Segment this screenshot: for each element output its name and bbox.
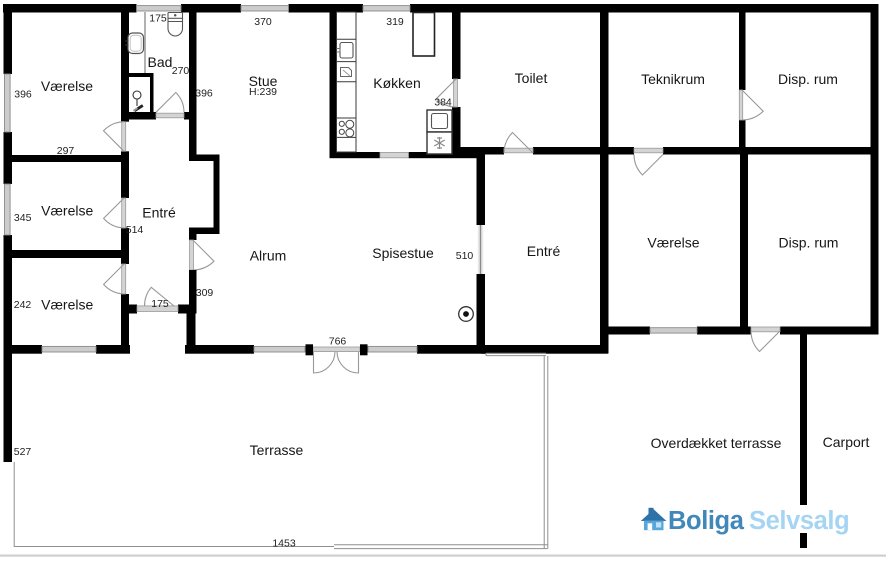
- svg-text:510: 510: [456, 250, 474, 262]
- svg-text:Terrasse: Terrasse: [250, 442, 304, 458]
- svg-text:370: 370: [254, 16, 272, 28]
- svg-text:309: 309: [196, 287, 214, 299]
- svg-text:Disp. rum: Disp. rum: [779, 235, 839, 251]
- svg-text:319: 319: [386, 16, 404, 28]
- svg-text:Entré: Entré: [527, 243, 561, 259]
- svg-text:Teknikrum: Teknikrum: [641, 71, 705, 87]
- svg-text:Alrum: Alrum: [250, 248, 287, 264]
- svg-text:Værelse: Værelse: [41, 78, 93, 94]
- svg-text:Disp. rum: Disp. rum: [778, 71, 838, 87]
- svg-text:242: 242: [14, 299, 32, 311]
- svg-text:175: 175: [151, 298, 169, 310]
- svg-text:Spisestue: Spisestue: [372, 245, 434, 261]
- svg-text:270: 270: [172, 65, 190, 77]
- svg-text:297: 297: [57, 145, 75, 157]
- svg-text:766: 766: [329, 336, 347, 348]
- svg-text:384: 384: [434, 97, 452, 109]
- svg-text:Boliga: Boliga: [668, 507, 745, 535]
- svg-text:Bad: Bad: [148, 54, 173, 70]
- svg-text:527: 527: [14, 446, 32, 458]
- svg-text:1453: 1453: [272, 538, 296, 550]
- svg-text:Køkken: Køkken: [373, 75, 420, 91]
- svg-text:175: 175: [149, 13, 167, 25]
- svg-text:Selvsalg: Selvsalg: [749, 507, 849, 535]
- svg-text:Overdækket terrasse: Overdækket terrasse: [651, 435, 782, 451]
- svg-text:345: 345: [14, 212, 32, 224]
- svg-text:Værelse: Værelse: [41, 203, 93, 219]
- svg-text:396: 396: [195, 88, 213, 100]
- svg-text:Entré: Entré: [142, 205, 176, 221]
- svg-text:396: 396: [14, 89, 32, 101]
- svg-text:Værelse: Værelse: [647, 235, 699, 251]
- svg-text:H:239: H:239: [249, 86, 277, 98]
- svg-text:Værelse: Værelse: [41, 297, 93, 313]
- svg-text:Toilet: Toilet: [515, 70, 548, 86]
- svg-text:Carport: Carport: [823, 434, 870, 450]
- svg-text:514: 514: [126, 224, 144, 236]
